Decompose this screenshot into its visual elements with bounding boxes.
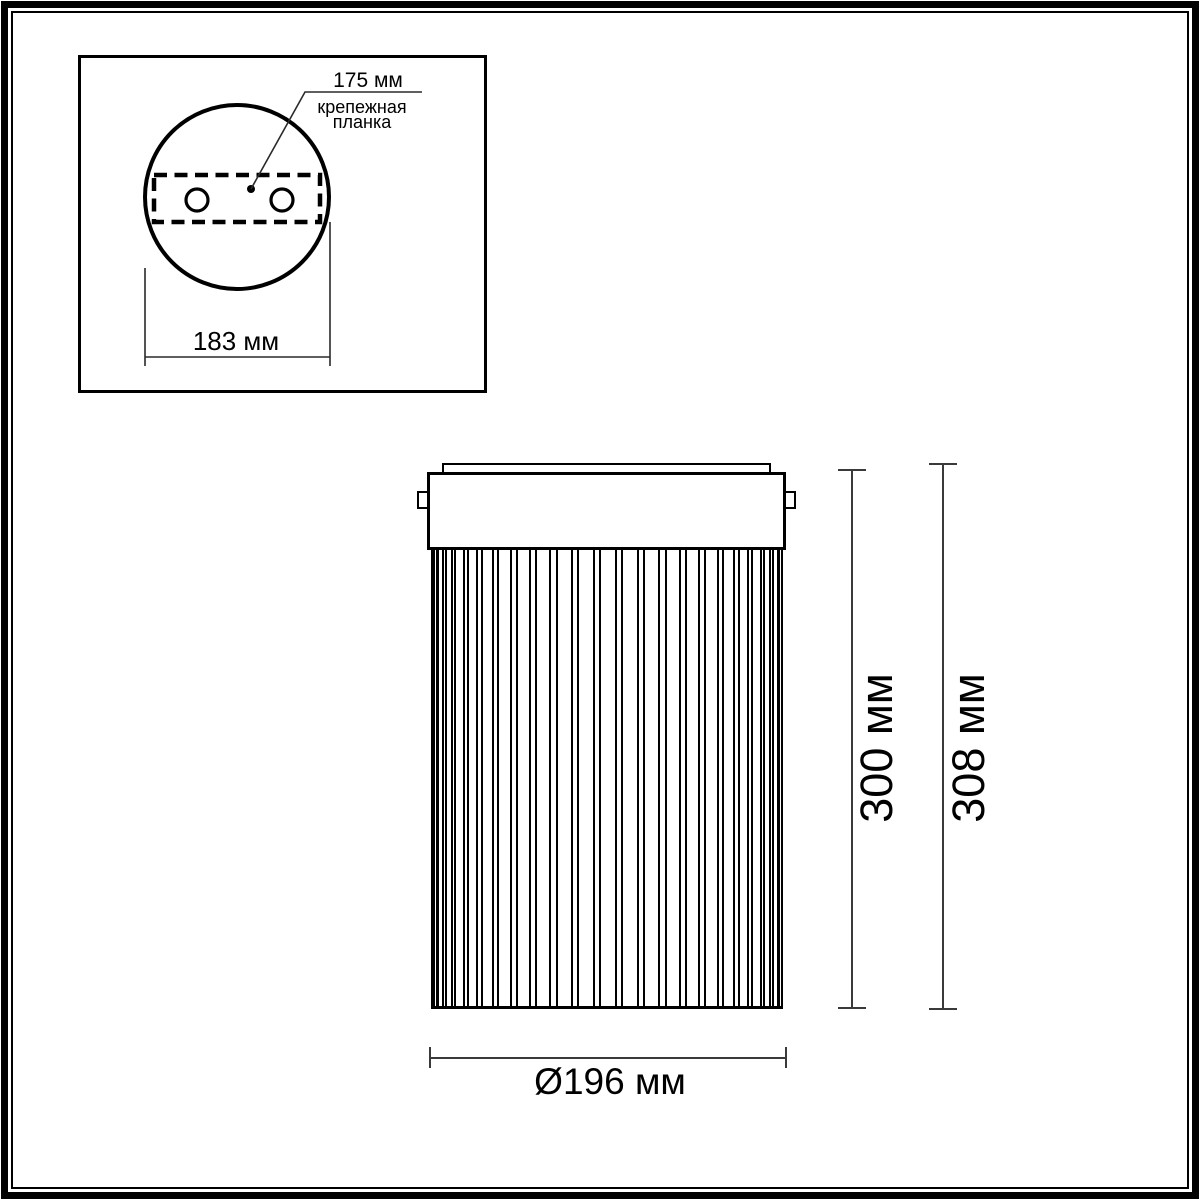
rib-line bbox=[733, 550, 735, 1006]
rib-line bbox=[704, 550, 706, 1006]
rib-line bbox=[778, 550, 780, 1006]
plate-width-label: 183 мм bbox=[166, 326, 306, 357]
rib-line bbox=[577, 550, 579, 1006]
rib-line bbox=[467, 550, 469, 1006]
rib-line bbox=[599, 550, 601, 1006]
rib-line bbox=[549, 550, 551, 1006]
lamp-ribbed-shade bbox=[431, 550, 783, 1009]
rib-line bbox=[763, 550, 765, 1006]
rib-line bbox=[529, 550, 531, 1006]
rib-line bbox=[751, 550, 753, 1006]
rib-line bbox=[437, 550, 439, 1006]
rib-line bbox=[497, 550, 499, 1006]
rib-line bbox=[481, 550, 483, 1006]
rib-line bbox=[738, 550, 740, 1006]
rib-line bbox=[516, 550, 518, 1006]
rib-line bbox=[621, 550, 623, 1006]
dimension-tick-308-top bbox=[929, 463, 957, 465]
rib-line bbox=[492, 550, 494, 1006]
rib-line bbox=[717, 550, 719, 1006]
rib-line bbox=[747, 550, 749, 1006]
hole-spacing-label: 175 мм bbox=[298, 69, 438, 93]
top-view-inset-panel: 175 мм крепежная планка 183 мм bbox=[78, 55, 487, 393]
rib-line bbox=[637, 550, 639, 1006]
rib-line bbox=[556, 550, 558, 1006]
rib-line bbox=[476, 550, 478, 1006]
rib-line bbox=[615, 550, 617, 1006]
rib-line bbox=[685, 550, 687, 1006]
rib-line bbox=[722, 550, 724, 1006]
rib-line bbox=[593, 550, 595, 1006]
rib-line bbox=[463, 550, 465, 1006]
diameter-tick-right bbox=[785, 1047, 787, 1068]
bracket-label-line2: планка bbox=[292, 115, 432, 130]
rib-line bbox=[665, 550, 667, 1006]
dimension-tick-308-bottom bbox=[929, 1008, 957, 1010]
diameter-label: Ø196 мм bbox=[534, 1061, 686, 1103]
rib-line bbox=[571, 550, 573, 1006]
bracket-label: крепежная планка bbox=[292, 100, 432, 130]
rib-line bbox=[451, 550, 453, 1006]
lamp-cap bbox=[427, 472, 786, 550]
rib-line bbox=[454, 550, 456, 1006]
rib-line bbox=[769, 550, 771, 1006]
rib-line bbox=[445, 550, 447, 1006]
technical-drawing-canvas: 175 мм крепежная планка 183 мм 300 мм 30… bbox=[0, 0, 1200, 1200]
rib-line bbox=[643, 550, 645, 1006]
rib-line bbox=[679, 550, 681, 1006]
dimension-tick-300-top bbox=[838, 469, 866, 471]
mounting-plate-circle bbox=[145, 105, 329, 289]
rib-line bbox=[535, 550, 537, 1006]
rib-line bbox=[510, 550, 512, 1006]
rib-line bbox=[781, 550, 783, 1006]
shade-height-label: 300 мм bbox=[851, 673, 903, 822]
rib-line bbox=[442, 550, 444, 1006]
diameter-dimension-line bbox=[430, 1057, 786, 1059]
rib-line bbox=[772, 550, 774, 1006]
rib-line bbox=[433, 550, 435, 1006]
rib-line bbox=[698, 550, 700, 1006]
rib-line bbox=[760, 550, 762, 1006]
total-height-label: 308 мм bbox=[943, 673, 995, 822]
dimension-tick-300-bottom bbox=[838, 1007, 866, 1009]
diameter-tick-left bbox=[429, 1047, 431, 1068]
rib-line bbox=[658, 550, 660, 1006]
